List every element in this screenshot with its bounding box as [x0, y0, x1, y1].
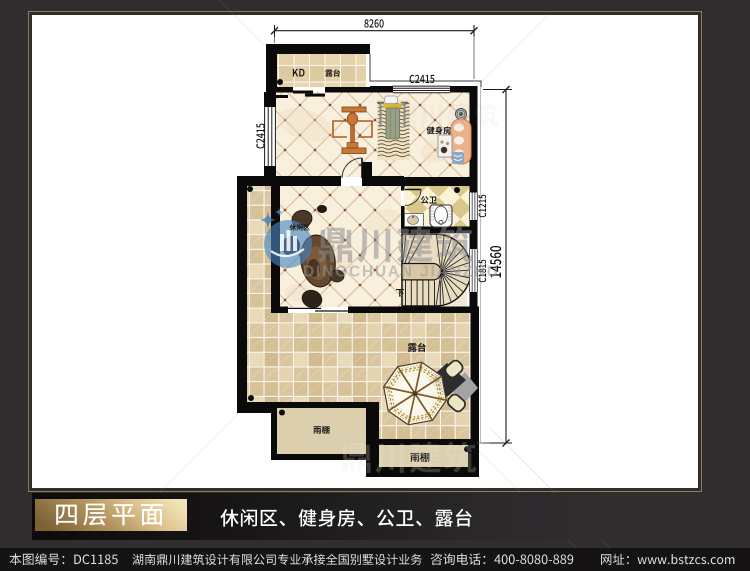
- svg-text:DINGCHUAN JIANZHU: DINGCHUAN JIANZHU: [303, 264, 500, 281]
